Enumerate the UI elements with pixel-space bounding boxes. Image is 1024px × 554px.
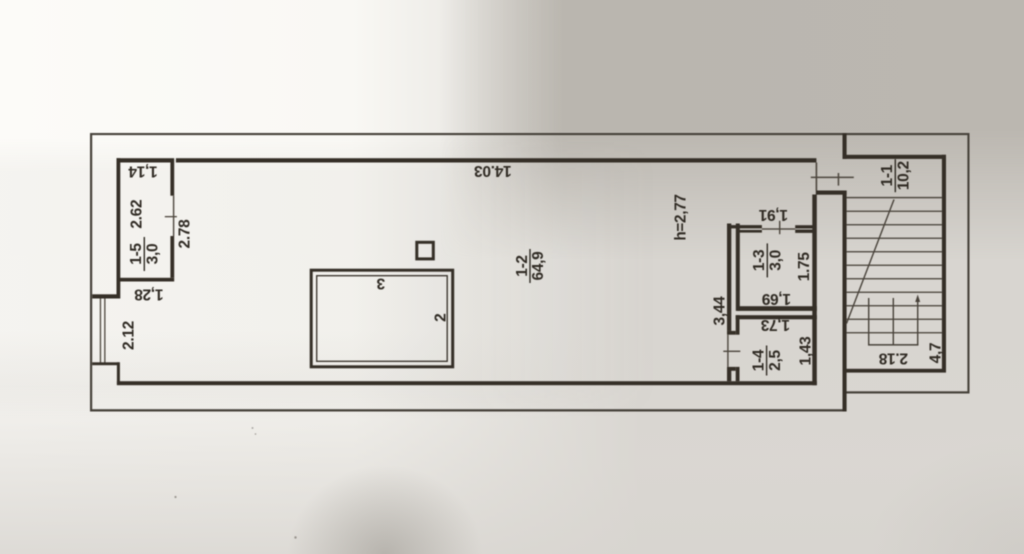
svg-text:1-1: 1-1 [879, 164, 896, 186]
svg-text:4,7: 4,7 [928, 343, 945, 364]
svg-text:1-4: 1-4 [750, 349, 767, 371]
svg-text:1,28: 1,28 [134, 286, 164, 303]
svg-text:1-3: 1-3 [751, 249, 768, 271]
svg-text:1,14: 1,14 [128, 163, 158, 180]
svg-text:2.18: 2.18 [878, 349, 908, 366]
svg-text:3,0: 3,0 [145, 244, 162, 265]
svg-text:1-5: 1-5 [128, 243, 145, 265]
svg-text:64,9: 64,9 [530, 251, 547, 281]
svg-text:2,5: 2,5 [767, 350, 784, 371]
svg-text:h=2,77: h=2,77 [673, 194, 690, 240]
svg-text:2.12: 2.12 [121, 321, 138, 350]
svg-text:1,73: 1,73 [760, 316, 790, 333]
svg-text:1,91: 1,91 [758, 206, 788, 223]
svg-text:2.62: 2.62 [128, 200, 145, 229]
svg-text:1,43: 1,43 [798, 336, 815, 366]
svg-text:3: 3 [376, 275, 385, 292]
svg-text:1,69: 1,69 [761, 290, 791, 307]
svg-text:2: 2 [433, 314, 450, 322]
svg-text:10,2: 10,2 [896, 161, 913, 190]
svg-text:1.75: 1.75 [796, 252, 813, 282]
svg-text:14.03: 14.03 [474, 162, 512, 179]
svg-text:3,44: 3,44 [712, 296, 729, 326]
svg-text:2.78: 2.78 [177, 219, 194, 249]
svg-text:1-2: 1-2 [514, 255, 531, 277]
svg-text:3,0: 3,0 [768, 250, 785, 271]
